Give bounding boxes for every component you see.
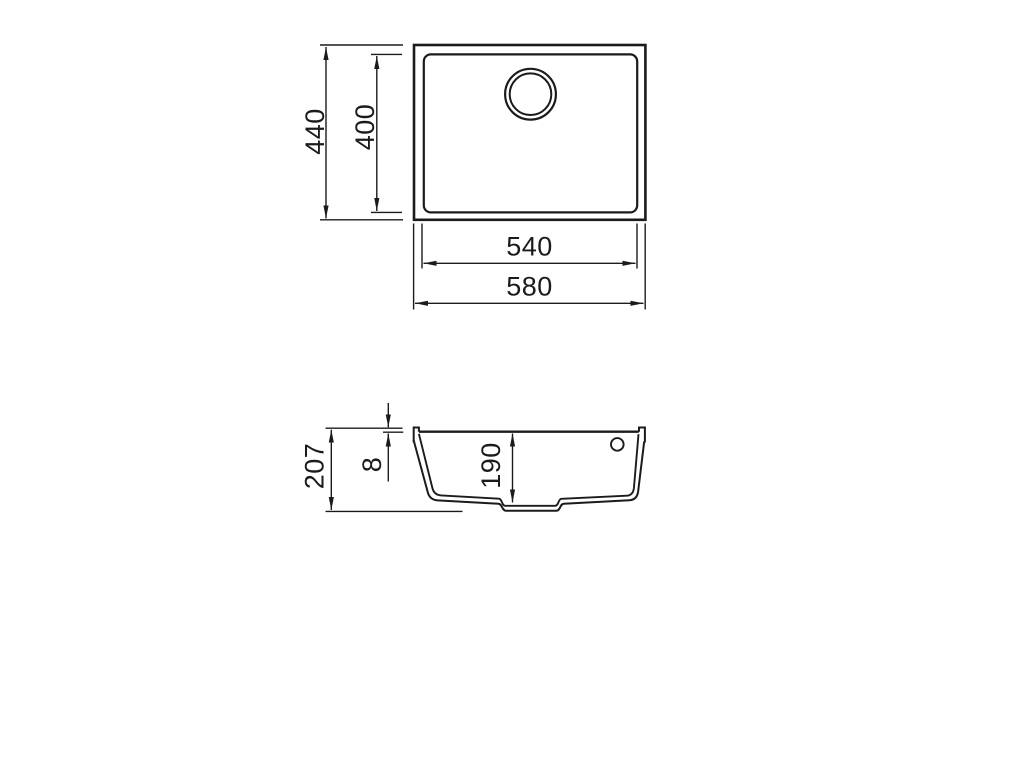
dim-overall-depth-label: 207 [300, 443, 330, 490]
dim-basin-height-label: 400 [350, 104, 380, 151]
sink-dimension-drawing: 440 400 540 580 [0, 0, 1024, 768]
dim-rim-height: 8 [357, 403, 403, 482]
section-bowl-outer-wall [414, 440, 645, 511]
dim-outer-width-label: 580 [506, 272, 553, 302]
sink-section-view: 207 8 190 [300, 403, 645, 511]
sink-plan-view: 440 400 540 580 [300, 45, 645, 310]
plan-basin-outline [424, 54, 637, 212]
dim-outer-height-label: 440 [300, 108, 330, 155]
dim-rim-height-label: 8 [357, 457, 387, 473]
section-right-lip [639, 428, 645, 443]
overflow-hole-circle [611, 438, 624, 451]
dim-bowl-depth-label: 190 [476, 442, 506, 489]
drain-outer-circle [505, 69, 556, 120]
section-bowl-inner-wall [419, 434, 639, 506]
dim-basin-height: 400 [350, 54, 402, 212]
dim-bowl-depth: 190 [476, 434, 513, 503]
dim-basin-width: 540 [422, 224, 637, 269]
drain-inner-circle [510, 73, 552, 115]
plan-outer-rim-outline [414, 45, 645, 220]
dim-basin-width-label: 540 [506, 232, 553, 262]
technical-drawing-page: 440 400 540 580 [0, 0, 1024, 768]
